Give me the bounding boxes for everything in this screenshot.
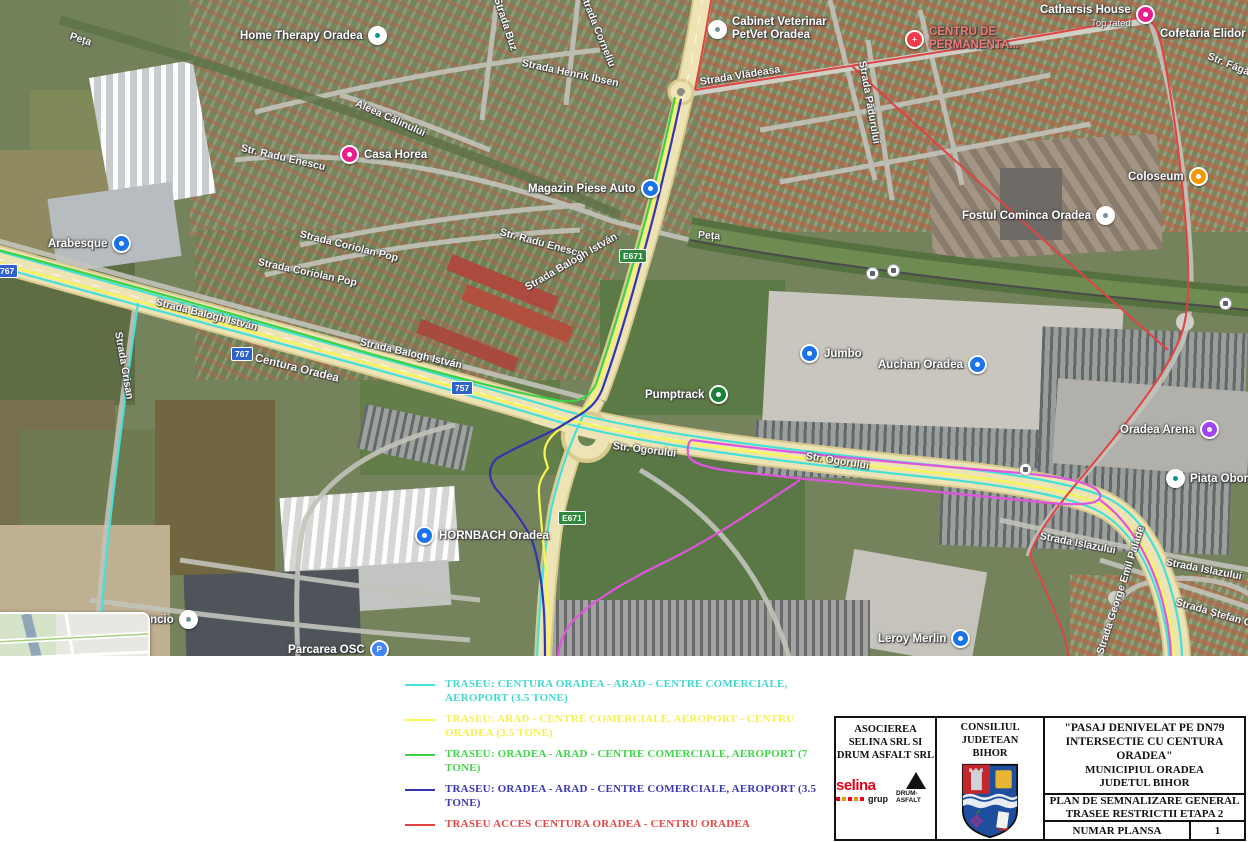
map-inset-toggle[interactable] <box>0 612 150 656</box>
building <box>1000 168 1062 240</box>
route-shield-767: 767 <box>231 347 253 361</box>
title-block: ASOCIEREA SELINA SRL SI DRUM ASFALT SRL … <box>834 716 1246 841</box>
shopping-pin-icon[interactable] <box>800 344 819 363</box>
legend-item: TRASEU: ORADEA - ARAD - CENTRE COMERCIAL… <box>405 748 840 775</box>
terrain-patch <box>155 400 275 575</box>
poi-fostul-cominca[interactable]: Fostul Cominca Oradea <box>962 206 1115 225</box>
route-legend: TRASEU: CENTURA ORADEA - ARAD - CENTRE C… <box>405 678 840 842</box>
plan-sheet: 767 767 757 E671 E671 Peța Strada Buz St… <box>0 0 1248 842</box>
poi-parcarea-osc[interactable]: Parcarea OSC P <box>288 640 389 656</box>
bus-stop-icon <box>866 267 879 280</box>
place-pin-icon[interactable] <box>1096 206 1115 225</box>
legend-item: TRASEU: CENTURA ORADEA - ARAD - CENTRE C… <box>405 678 840 705</box>
poi-catharsis-house[interactable]: Catharsis House Top rated <box>1040 0 1155 29</box>
selina-logo: selina grup <box>836 779 888 804</box>
parking-lot <box>540 600 870 656</box>
plan-name-cell: PLAN DE SEMNALIZARE GENERAL TRASEE RESTR… <box>1045 795 1244 822</box>
sheet-number-value: 1 <box>1191 822 1244 839</box>
poi-oradea-arena[interactable]: Oradea Arena <box>1120 420 1219 439</box>
place-pin-icon[interactable] <box>179 610 198 629</box>
building <box>47 182 181 274</box>
restaurant-pin-icon[interactable] <box>1189 167 1208 186</box>
legend-item: TRASEU: ARAD - CENTRE COMERCIALE, AEROPO… <box>405 713 840 740</box>
bus-stop-icon <box>887 264 900 277</box>
bus-stop-icon <box>1019 463 1032 476</box>
shopping-pin-icon[interactable] <box>951 629 970 648</box>
title-block-project: "PASAJ DENIVELAT PE DN79 INTERSECTIE CU … <box>1045 718 1244 839</box>
satellite-map[interactable]: 767 767 757 E671 E671 Peța Strada Buz St… <box>0 0 1248 656</box>
poi-petvet[interactable]: Cabinet Veterinar PetVet Oradea <box>708 16 827 42</box>
lodging-pin-icon[interactable] <box>340 145 359 164</box>
mountain-icon <box>906 772 926 789</box>
shopping-pin-icon[interactable] <box>641 179 660 198</box>
poi-casa-horea[interactable]: Casa Horea <box>340 145 427 164</box>
poi-jumbo[interactable]: Jumbo <box>800 344 862 363</box>
poi-auchan[interactable]: Auchan Oradea <box>878 355 987 374</box>
route-swatch-navy <box>405 789 435 791</box>
sheet-number-label: NUMAR PLANSA <box>1045 822 1191 839</box>
lodging-pin-icon[interactable] <box>1136 5 1155 24</box>
route-shield-e671: E671 <box>619 249 647 263</box>
street-label: Peța <box>698 229 721 243</box>
poi-hornbach[interactable]: HORNBACH Oradea <box>415 526 549 545</box>
route-shield-757: 757 <box>451 381 473 395</box>
poi-coloseum[interactable]: Coloseum <box>1128 167 1208 186</box>
route-swatch-cyan <box>405 684 435 686</box>
shopping-pin-icon[interactable] <box>415 526 434 545</box>
drum-asfalt-logo: DRUM-ASFALT <box>896 772 935 804</box>
market-pin-icon[interactable] <box>1166 469 1185 488</box>
route-shield-e671: E671 <box>558 511 586 525</box>
medical-pin-icon[interactable]: + <box>905 30 924 49</box>
park-pin-icon[interactable] <box>709 385 728 404</box>
bihor-coat-of-arms <box>958 763 1022 839</box>
poi-leroy-merlin[interactable]: Leroy Merlin <box>878 629 970 648</box>
project-title-cell: "PASAJ DENIVELAT PE DN79 INTERSECTIE CU … <box>1045 718 1244 795</box>
route-swatch-red <box>405 824 435 826</box>
title-block-council: CONSILIUL JUDETEAN BIHOR <box>937 718 1045 839</box>
route-shield-767: 767 <box>0 264 18 278</box>
terrain-patch <box>0 255 135 405</box>
arena-pin-icon[interactable] <box>1200 420 1219 439</box>
bus-stop-icon <box>1219 297 1232 310</box>
parking-pin-icon[interactable]: P <box>370 640 389 656</box>
poi-centru-permanenta[interactable]: + CENTRU DE PERMANENTA... <box>905 26 1019 52</box>
shopping-pin-icon[interactable] <box>968 355 987 374</box>
poi-arabesque[interactable]: Arabesque <box>48 234 131 253</box>
poi-cofetaria-elidor[interactable]: Cofetaria Elidor <box>1160 24 1248 43</box>
shopping-pin-icon[interactable] <box>112 234 131 253</box>
place-pin-icon[interactable] <box>708 20 727 39</box>
poi-pumptrack[interactable]: Pumptrack <box>645 385 728 404</box>
legend-item: TRASEU ACCES CENTURA ORADEA - CENTRU ORA… <box>405 818 840 832</box>
poi-piata-obor[interactable]: Piața Obor <box>1166 469 1248 488</box>
poi-magazin-piese-auto[interactable]: Magazin Piese Auto <box>528 179 660 198</box>
legend-item: TRASEU: ORADEA - ARAD - CENTRE COMERCIAL… <box>405 783 840 810</box>
route-swatch-green <box>405 754 435 756</box>
title-block-company: ASOCIEREA SELINA SRL SI DRUM ASFALT SRL … <box>836 718 937 839</box>
place-pin-icon[interactable] <box>368 26 387 45</box>
poi-home-therapy[interactable]: Home Therapy Oradea <box>240 26 387 45</box>
route-swatch-yellow <box>405 719 435 721</box>
inset-preview <box>0 614 148 656</box>
sheet-number-row: NUMAR PLANSA 1 <box>1045 822 1244 839</box>
